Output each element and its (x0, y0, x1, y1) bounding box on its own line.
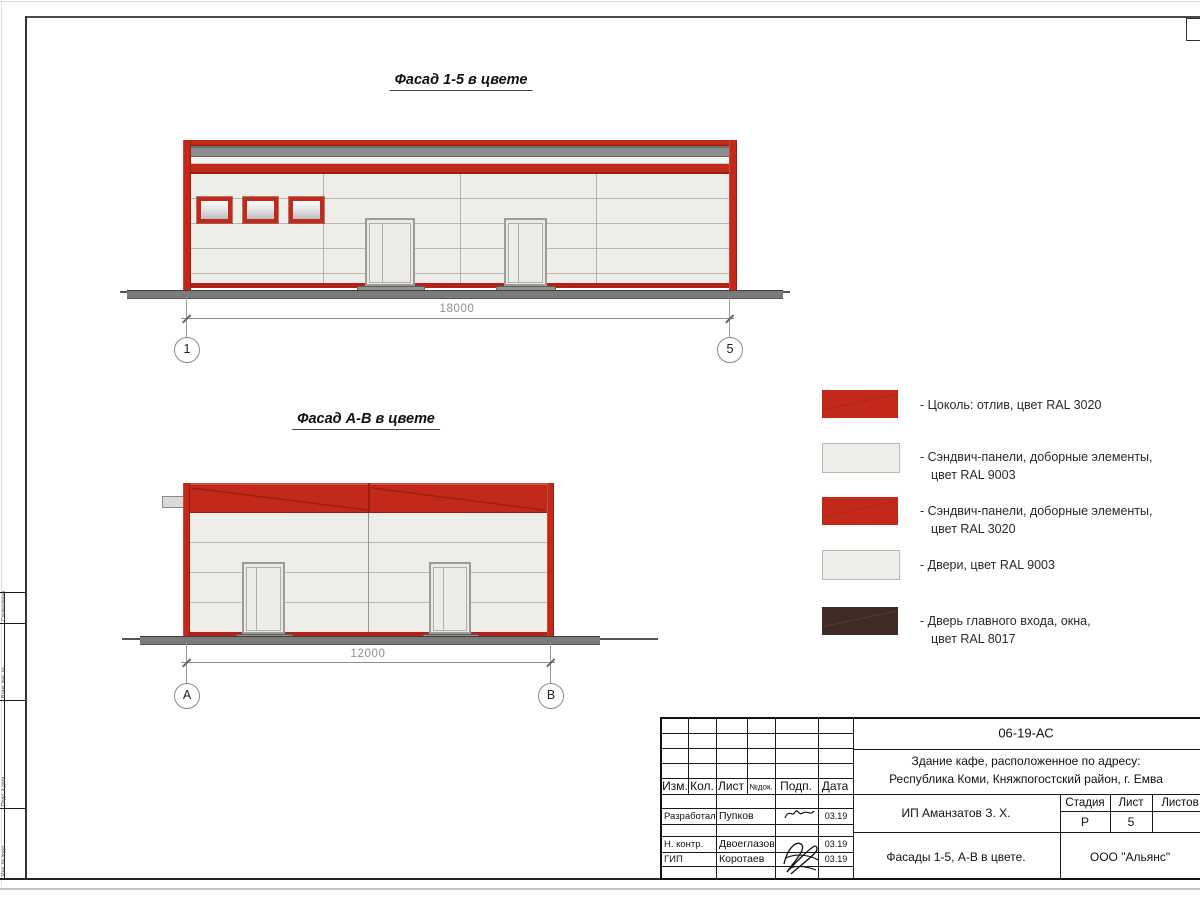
role-date: 03.19 (825, 839, 848, 849)
panel-joint (460, 174, 461, 286)
rev-header-list: Лист (718, 779, 744, 793)
side-stamp-label: Подп. и дата (1, 777, 7, 806)
role-name: Пупков (719, 810, 754, 822)
axis-marker-b: В (538, 683, 564, 709)
legend-label: - Двери, цвет RAL 9003 (920, 556, 1055, 574)
rev-header-ndok: №док. (749, 783, 772, 792)
window (243, 197, 278, 223)
corner-column (183, 483, 190, 640)
legend-swatch-plinth (822, 390, 898, 418)
door-leaf (382, 223, 411, 283)
side-stamp-label: Согласовано (1, 591, 7, 621)
window (197, 197, 232, 223)
axis-marker-1: 1 (174, 337, 200, 363)
legend-swatch-panels-white (822, 443, 900, 473)
sheet-header: Лист (1119, 797, 1144, 809)
facade-a-b-drawing (183, 483, 554, 644)
signature (776, 834, 822, 878)
red-band (191, 164, 729, 174)
project-address-line1: Здание кафе, расположенное по адресу: (911, 754, 1140, 768)
entrance-door (504, 218, 547, 286)
roof-band (191, 146, 729, 157)
document-code: 06-19-АС (998, 726, 1053, 741)
panel-joint (323, 174, 324, 286)
dimension-line (181, 318, 734, 319)
legend-swatch-panels-red (822, 497, 898, 525)
panel-joint (368, 513, 369, 636)
corner-column (547, 483, 554, 640)
facade-a-b-title: Фасад А-В в цвете (292, 411, 440, 430)
sheet-edge-bottom (0, 888, 1200, 890)
stage-header: Стадия (1065, 797, 1104, 809)
legend-label: - Сэндвич-панели, доборные элементы, цве… (920, 502, 1153, 538)
project-address-line2: Республика Коми, Княжпогостский район, г… (889, 772, 1163, 786)
door-leaf (443, 567, 467, 631)
sheet-edge-left (1, 1, 2, 887)
rev-header-data: Дата (822, 779, 849, 793)
sheet-title: Фасады 1-5, А-В в цвете. (886, 850, 1025, 864)
white-strip (191, 157, 729, 164)
sheet-value: 5 (1128, 815, 1135, 829)
red-gable-band (183, 483, 554, 513)
entrance-door (242, 562, 285, 634)
door-leaf (518, 223, 543, 283)
facade-1-5-drawing (183, 140, 737, 297)
frame-corner-box (1186, 18, 1200, 41)
role-name: Двоеглазов (719, 838, 775, 850)
entrance-door (429, 562, 471, 634)
signature (781, 806, 817, 822)
side-stamp-label: Инв. № подл. (1, 845, 7, 876)
rev-header-kol: Кол. (690, 779, 714, 793)
legend-swatch-main-door (822, 607, 898, 635)
facade-1-5-title: Фасад 1-5 в цвете (390, 72, 533, 91)
stage-value: Р (1081, 815, 1089, 829)
plinth-strip (191, 283, 729, 288)
panel-joint (596, 174, 597, 286)
sheets-header: Листов (1161, 797, 1198, 809)
role-label: ГИП (664, 854, 683, 865)
door-leaf (256, 567, 281, 631)
axis-marker-a: А (174, 683, 200, 709)
dimension-text: 18000 (440, 303, 475, 315)
rev-header-izm: Изм. (662, 779, 688, 793)
window (289, 197, 324, 223)
drawing-sheet: Фасад 1-5 в цвете (0, 0, 1200, 900)
legend-label: - Дверь главного входа, окна, цвет RAL 8… (920, 612, 1091, 648)
axis-marker-5: 5 (717, 337, 743, 363)
legend-label: - Сэндвич-панели, доборные элементы, цве… (920, 448, 1153, 484)
role-name: Коротаев (719, 853, 764, 865)
role-label: Н. контр. (664, 839, 703, 850)
corner-column (729, 140, 737, 293)
entrance-door (365, 218, 415, 286)
client-name: ИП Аманзатов З. Х. (901, 806, 1010, 820)
organization-name: ООО "Альянс" (1090, 850, 1170, 864)
frame-line-top (25, 16, 1200, 18)
ground-strip (127, 290, 783, 299)
frame-line-left (25, 16, 27, 880)
ground-strip (140, 636, 600, 645)
dimension-line (181, 662, 555, 663)
rev-header-podp: Подп. (780, 779, 812, 793)
corner-column (183, 140, 191, 293)
role-label: Разработал (664, 811, 716, 822)
gable-joint (368, 483, 370, 513)
legend-swatch-doors (822, 550, 900, 580)
sheet-edge-top (0, 1, 1200, 2)
role-date: 03.19 (825, 854, 848, 864)
side-stamp-label: Взам. инв. № (1, 667, 7, 698)
dimension-text: 12000 (351, 648, 386, 660)
role-date: 03.19 (825, 811, 848, 821)
legend-label: - Цоколь: отлив, цвет RAL 3020 (920, 396, 1101, 414)
